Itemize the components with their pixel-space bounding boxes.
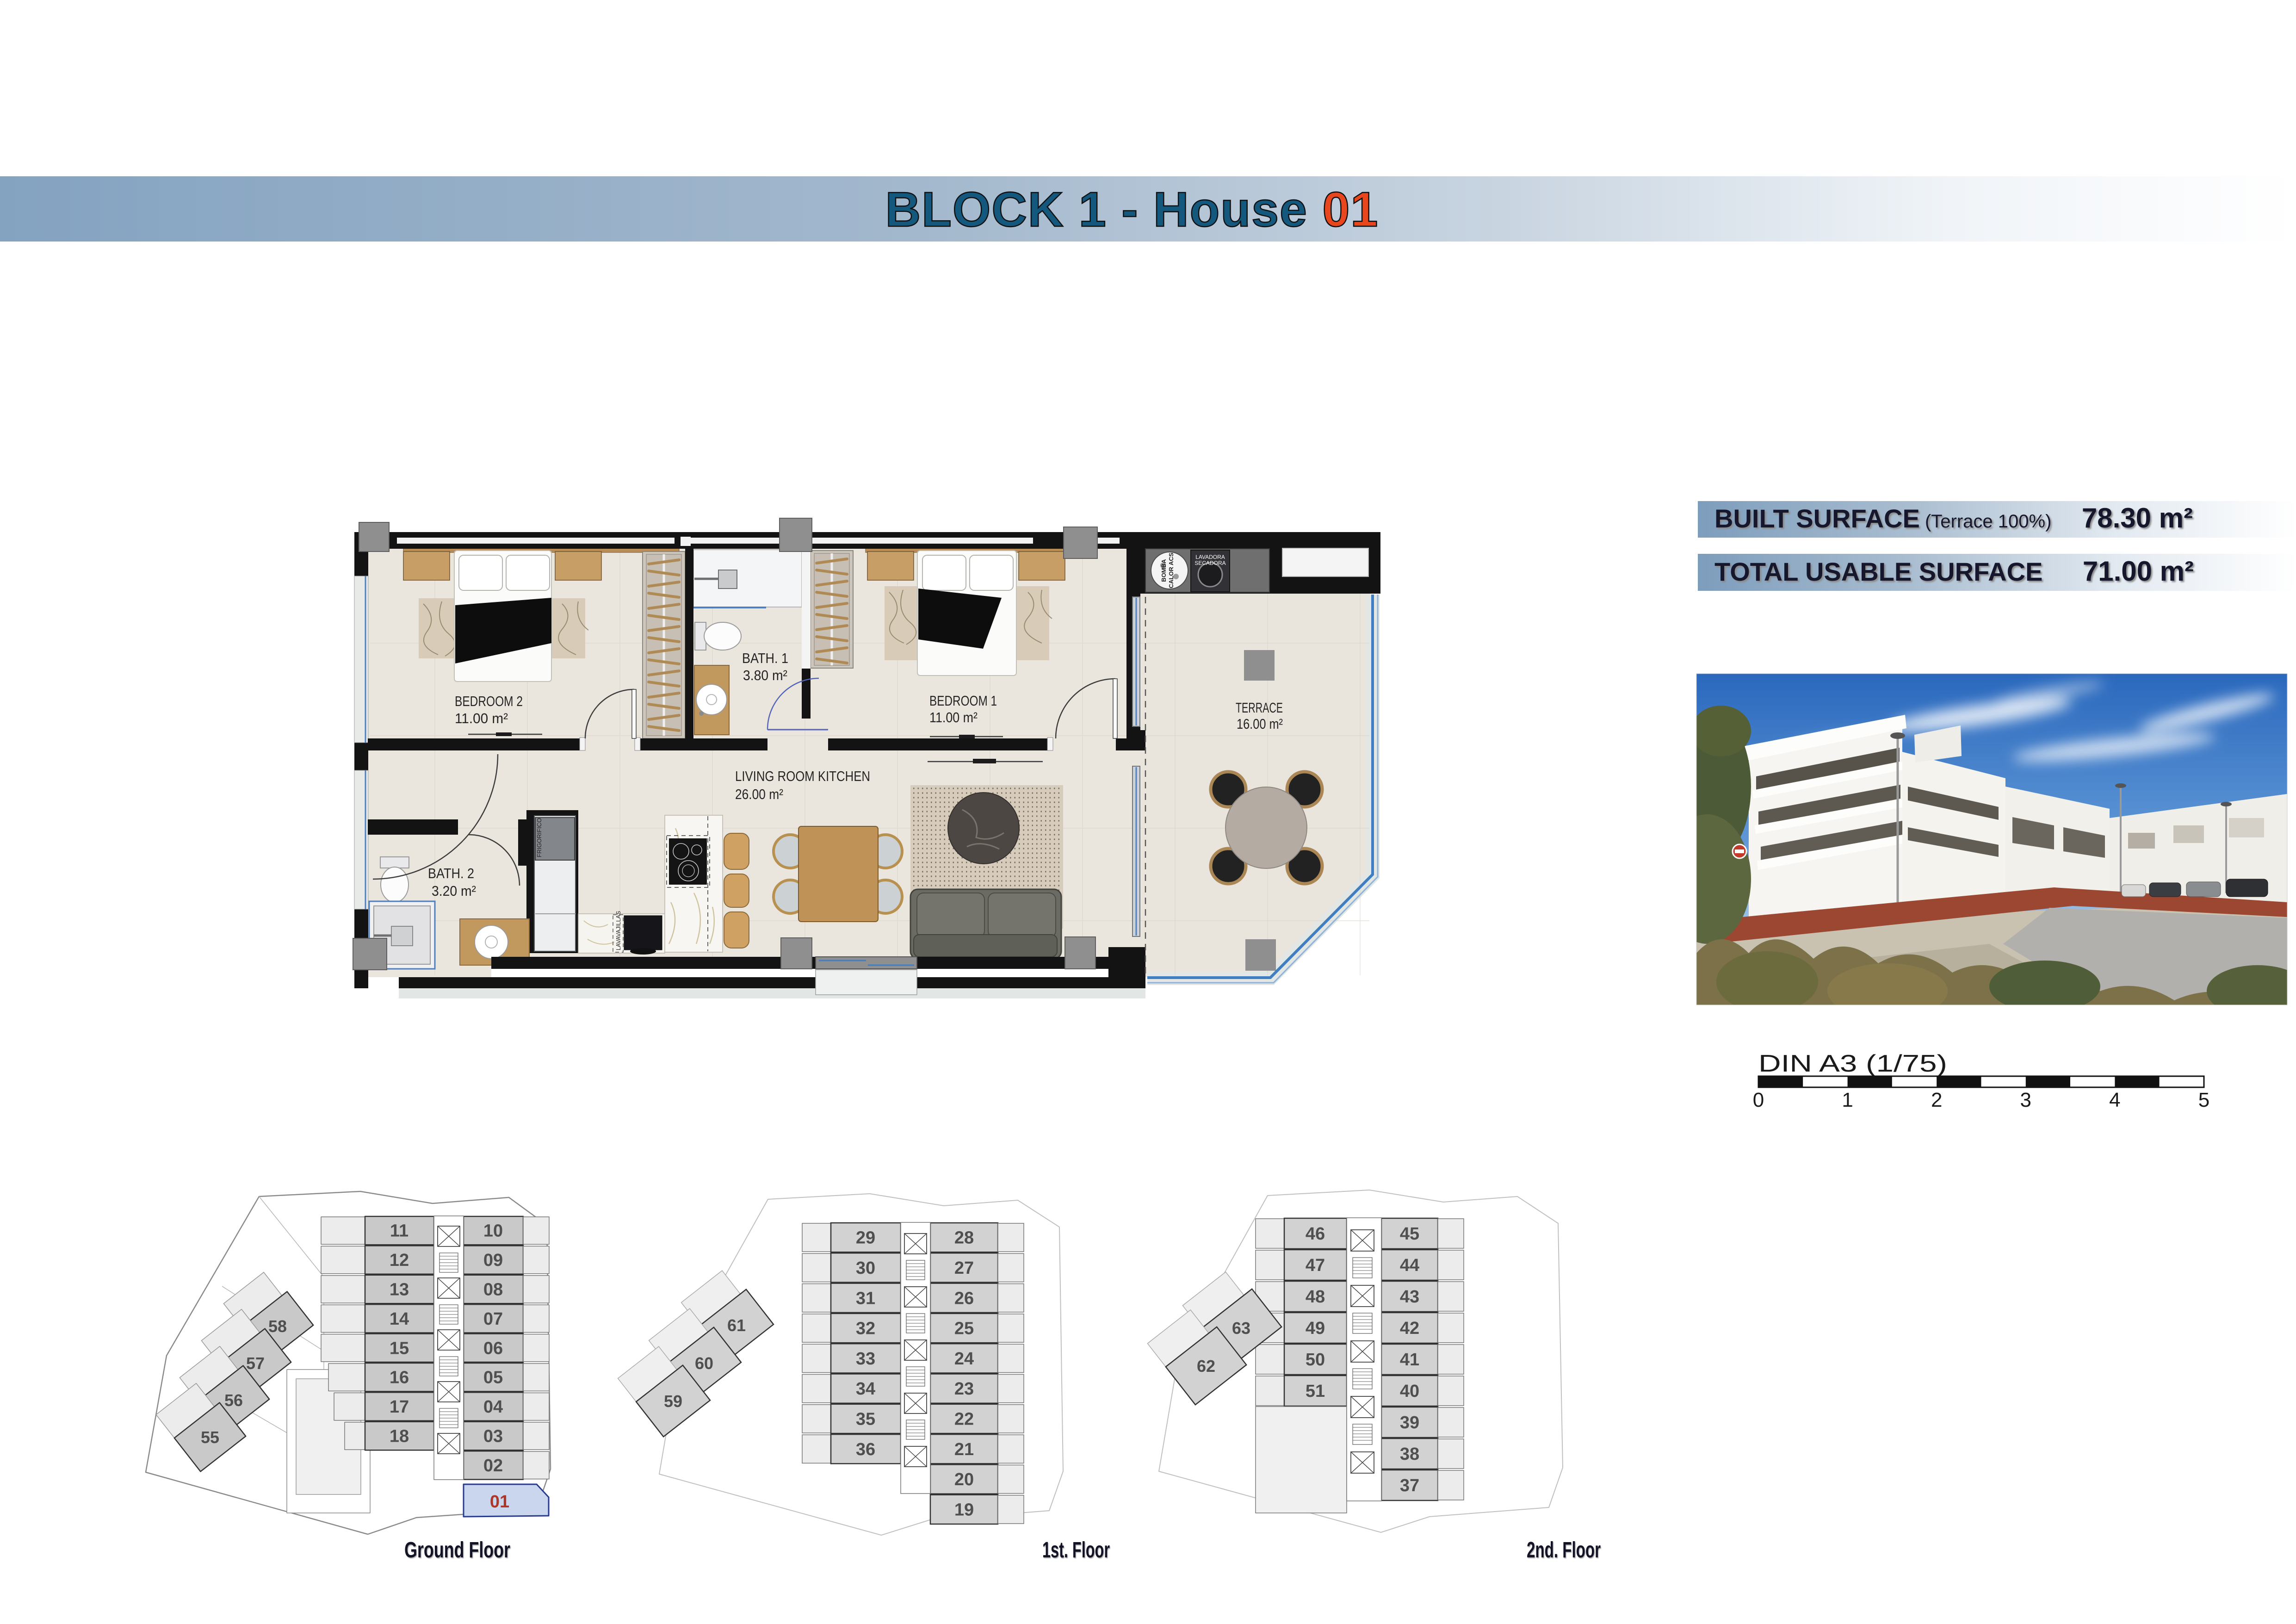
svg-text:BATH. 2: BATH. 2 [428, 865, 474, 881]
svg-text:BLOCK 1 - House 01: BLOCK 1 - House 01 [885, 182, 1379, 237]
svg-text:18: 18 [390, 1427, 409, 1446]
svg-text:60: 60 [695, 1354, 713, 1373]
svg-text:27: 27 [954, 1258, 974, 1278]
svg-text:BOMBA: BOMBA [1160, 559, 1167, 582]
svg-text:05: 05 [483, 1368, 503, 1388]
svg-text:31: 31 [856, 1289, 875, 1308]
svg-text:13: 13 [390, 1280, 409, 1300]
svg-text:50: 50 [1306, 1350, 1325, 1370]
svg-text:14: 14 [390, 1309, 409, 1329]
svg-text:TERRACE: TERRACE [1236, 700, 1283, 716]
svg-text:02: 02 [483, 1456, 503, 1475]
svg-text:71.00 m²: 71.00 m² [2083, 556, 2194, 587]
svg-text:2nd. Floor: 2nd. Floor [1527, 1538, 1601, 1562]
svg-text:26.00 m²: 26.00 m² [735, 786, 783, 802]
svg-text:06: 06 [483, 1339, 503, 1358]
svg-text:11.00 m²: 11.00 m² [455, 710, 508, 726]
svg-text:35: 35 [856, 1409, 875, 1429]
svg-text:42: 42 [1400, 1319, 1419, 1338]
svg-text:78.30 m²: 78.30 m² [2082, 502, 2193, 533]
svg-text:DIN A3 (1/75): DIN A3 (1/75) [1758, 1050, 1947, 1077]
svg-text:23: 23 [954, 1379, 974, 1399]
svg-text:10: 10 [483, 1221, 503, 1241]
svg-text:12: 12 [390, 1251, 409, 1270]
svg-text:47: 47 [1306, 1256, 1325, 1275]
svg-text:34: 34 [856, 1379, 875, 1399]
svg-text:28: 28 [954, 1228, 974, 1248]
svg-text:2: 2 [1931, 1089, 1942, 1111]
svg-text:3.80 m²: 3.80 m² [743, 667, 787, 683]
svg-text:57: 57 [246, 1354, 265, 1373]
svg-text:49: 49 [1306, 1319, 1325, 1338]
svg-text:29: 29 [856, 1228, 875, 1248]
svg-text:01: 01 [490, 1492, 509, 1512]
svg-text:LAVAVAJILLAS: LAVAVAJILLAS [615, 911, 622, 950]
svg-text:04: 04 [483, 1397, 503, 1417]
svg-text:BEDROOM 2: BEDROOM 2 [455, 693, 523, 709]
svg-text:58: 58 [268, 1317, 287, 1336]
svg-text:40: 40 [1400, 1382, 1419, 1401]
svg-text:07: 07 [483, 1309, 503, 1329]
svg-text:37: 37 [1400, 1476, 1419, 1495]
svg-text:0: 0 [1753, 1089, 1764, 1111]
svg-text:08: 08 [483, 1280, 503, 1300]
svg-text:1st. Floor: 1st. Floor [1042, 1538, 1110, 1562]
svg-text:26: 26 [954, 1289, 974, 1308]
svg-text:LAVADORA: LAVADORA [1195, 554, 1225, 560]
svg-text:BATH. 1: BATH. 1 [742, 650, 788, 666]
svg-text:56: 56 [224, 1391, 243, 1410]
svg-text:24: 24 [954, 1349, 974, 1369]
svg-text:63: 63 [1232, 1319, 1250, 1338]
svg-text:11: 11 [390, 1221, 408, 1241]
svg-text:39: 39 [1400, 1413, 1419, 1432]
svg-text:TOTAL USABLE SURFACE: TOTAL USABLE SURFACE [1714, 557, 2042, 586]
svg-text:16.00 m²: 16.00 m² [1237, 716, 1283, 732]
svg-text:62: 62 [1197, 1357, 1215, 1376]
svg-text:48: 48 [1306, 1287, 1325, 1307]
svg-text:09: 09 [483, 1251, 503, 1270]
svg-text:45: 45 [1400, 1224, 1419, 1244]
svg-text:38: 38 [1400, 1444, 1419, 1464]
svg-text:41: 41 [1400, 1350, 1419, 1370]
svg-text:22: 22 [954, 1409, 974, 1429]
svg-text:FRIGORIFICO: FRIGORIFICO [536, 818, 543, 857]
svg-text:51: 51 [1306, 1382, 1325, 1401]
svg-text:03: 03 [483, 1427, 503, 1446]
svg-text:5: 5 [2198, 1089, 2209, 1111]
svg-text:Ground Floor: Ground Floor [404, 1538, 510, 1562]
svg-text:17: 17 [390, 1397, 409, 1417]
svg-text:61: 61 [727, 1316, 746, 1335]
svg-text:CALOR ACS: CALOR ACS [1168, 552, 1175, 588]
svg-text:4: 4 [2109, 1089, 2120, 1111]
svg-text:20: 20 [954, 1470, 974, 1489]
svg-text:32: 32 [856, 1319, 875, 1339]
svg-text:SECADORA: SECADORA [1194, 560, 1225, 566]
svg-text:1: 1 [1842, 1089, 1853, 1111]
svg-text:25: 25 [954, 1319, 974, 1339]
svg-text:43: 43 [1400, 1287, 1419, 1307]
svg-text:3.20 m²: 3.20 m² [432, 883, 476, 899]
svg-text:55: 55 [201, 1428, 219, 1447]
svg-text:59: 59 [664, 1392, 682, 1411]
svg-text:33: 33 [856, 1349, 875, 1369]
svg-text:BEDROOM 1: BEDROOM 1 [929, 693, 997, 709]
svg-text:44: 44 [1400, 1256, 1419, 1275]
svg-text:11.00 m²: 11.00 m² [929, 709, 978, 725]
svg-text:36: 36 [856, 1440, 875, 1459]
svg-text:16: 16 [390, 1368, 409, 1388]
svg-text:15: 15 [390, 1339, 409, 1358]
svg-text:3: 3 [2020, 1089, 2031, 1111]
svg-text:30: 30 [856, 1258, 875, 1278]
svg-text:21: 21 [954, 1440, 974, 1459]
svg-text:19: 19 [954, 1500, 974, 1519]
svg-text:46: 46 [1306, 1224, 1325, 1244]
svg-text:LIVING ROOM KITCHEN: LIVING ROOM KITCHEN [735, 768, 870, 784]
